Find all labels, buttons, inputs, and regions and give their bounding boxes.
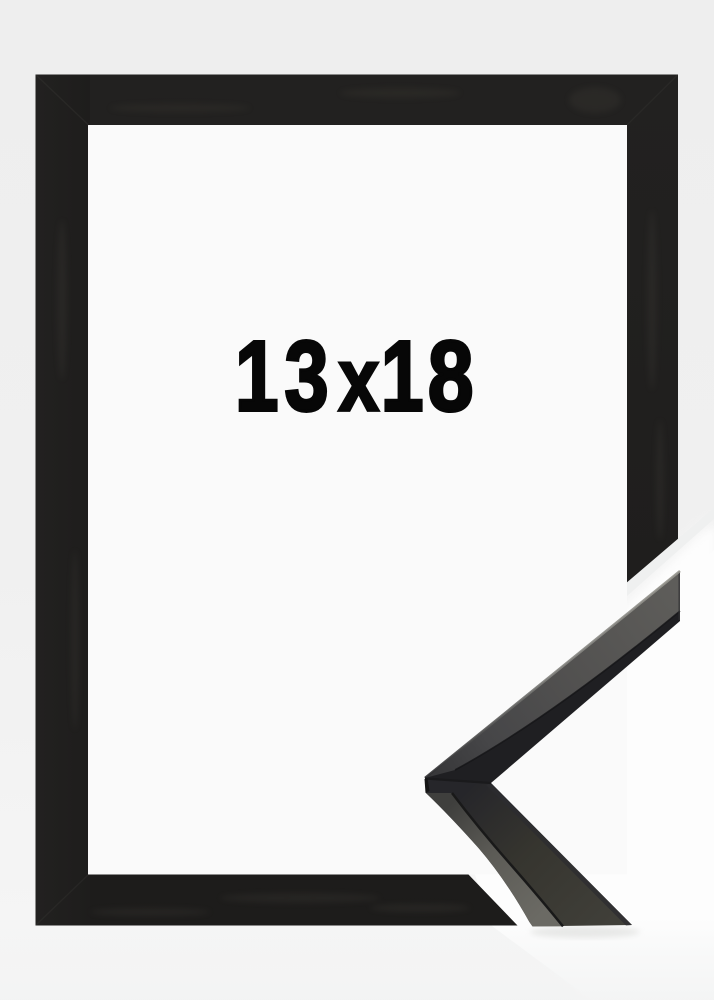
svg-text:1: 1 xyxy=(235,322,279,433)
svg-text:8: 8 xyxy=(428,321,474,432)
svg-text:1: 1 xyxy=(381,320,424,432)
svg-text:3: 3 xyxy=(284,321,328,433)
svg-text:x: x xyxy=(338,331,379,431)
